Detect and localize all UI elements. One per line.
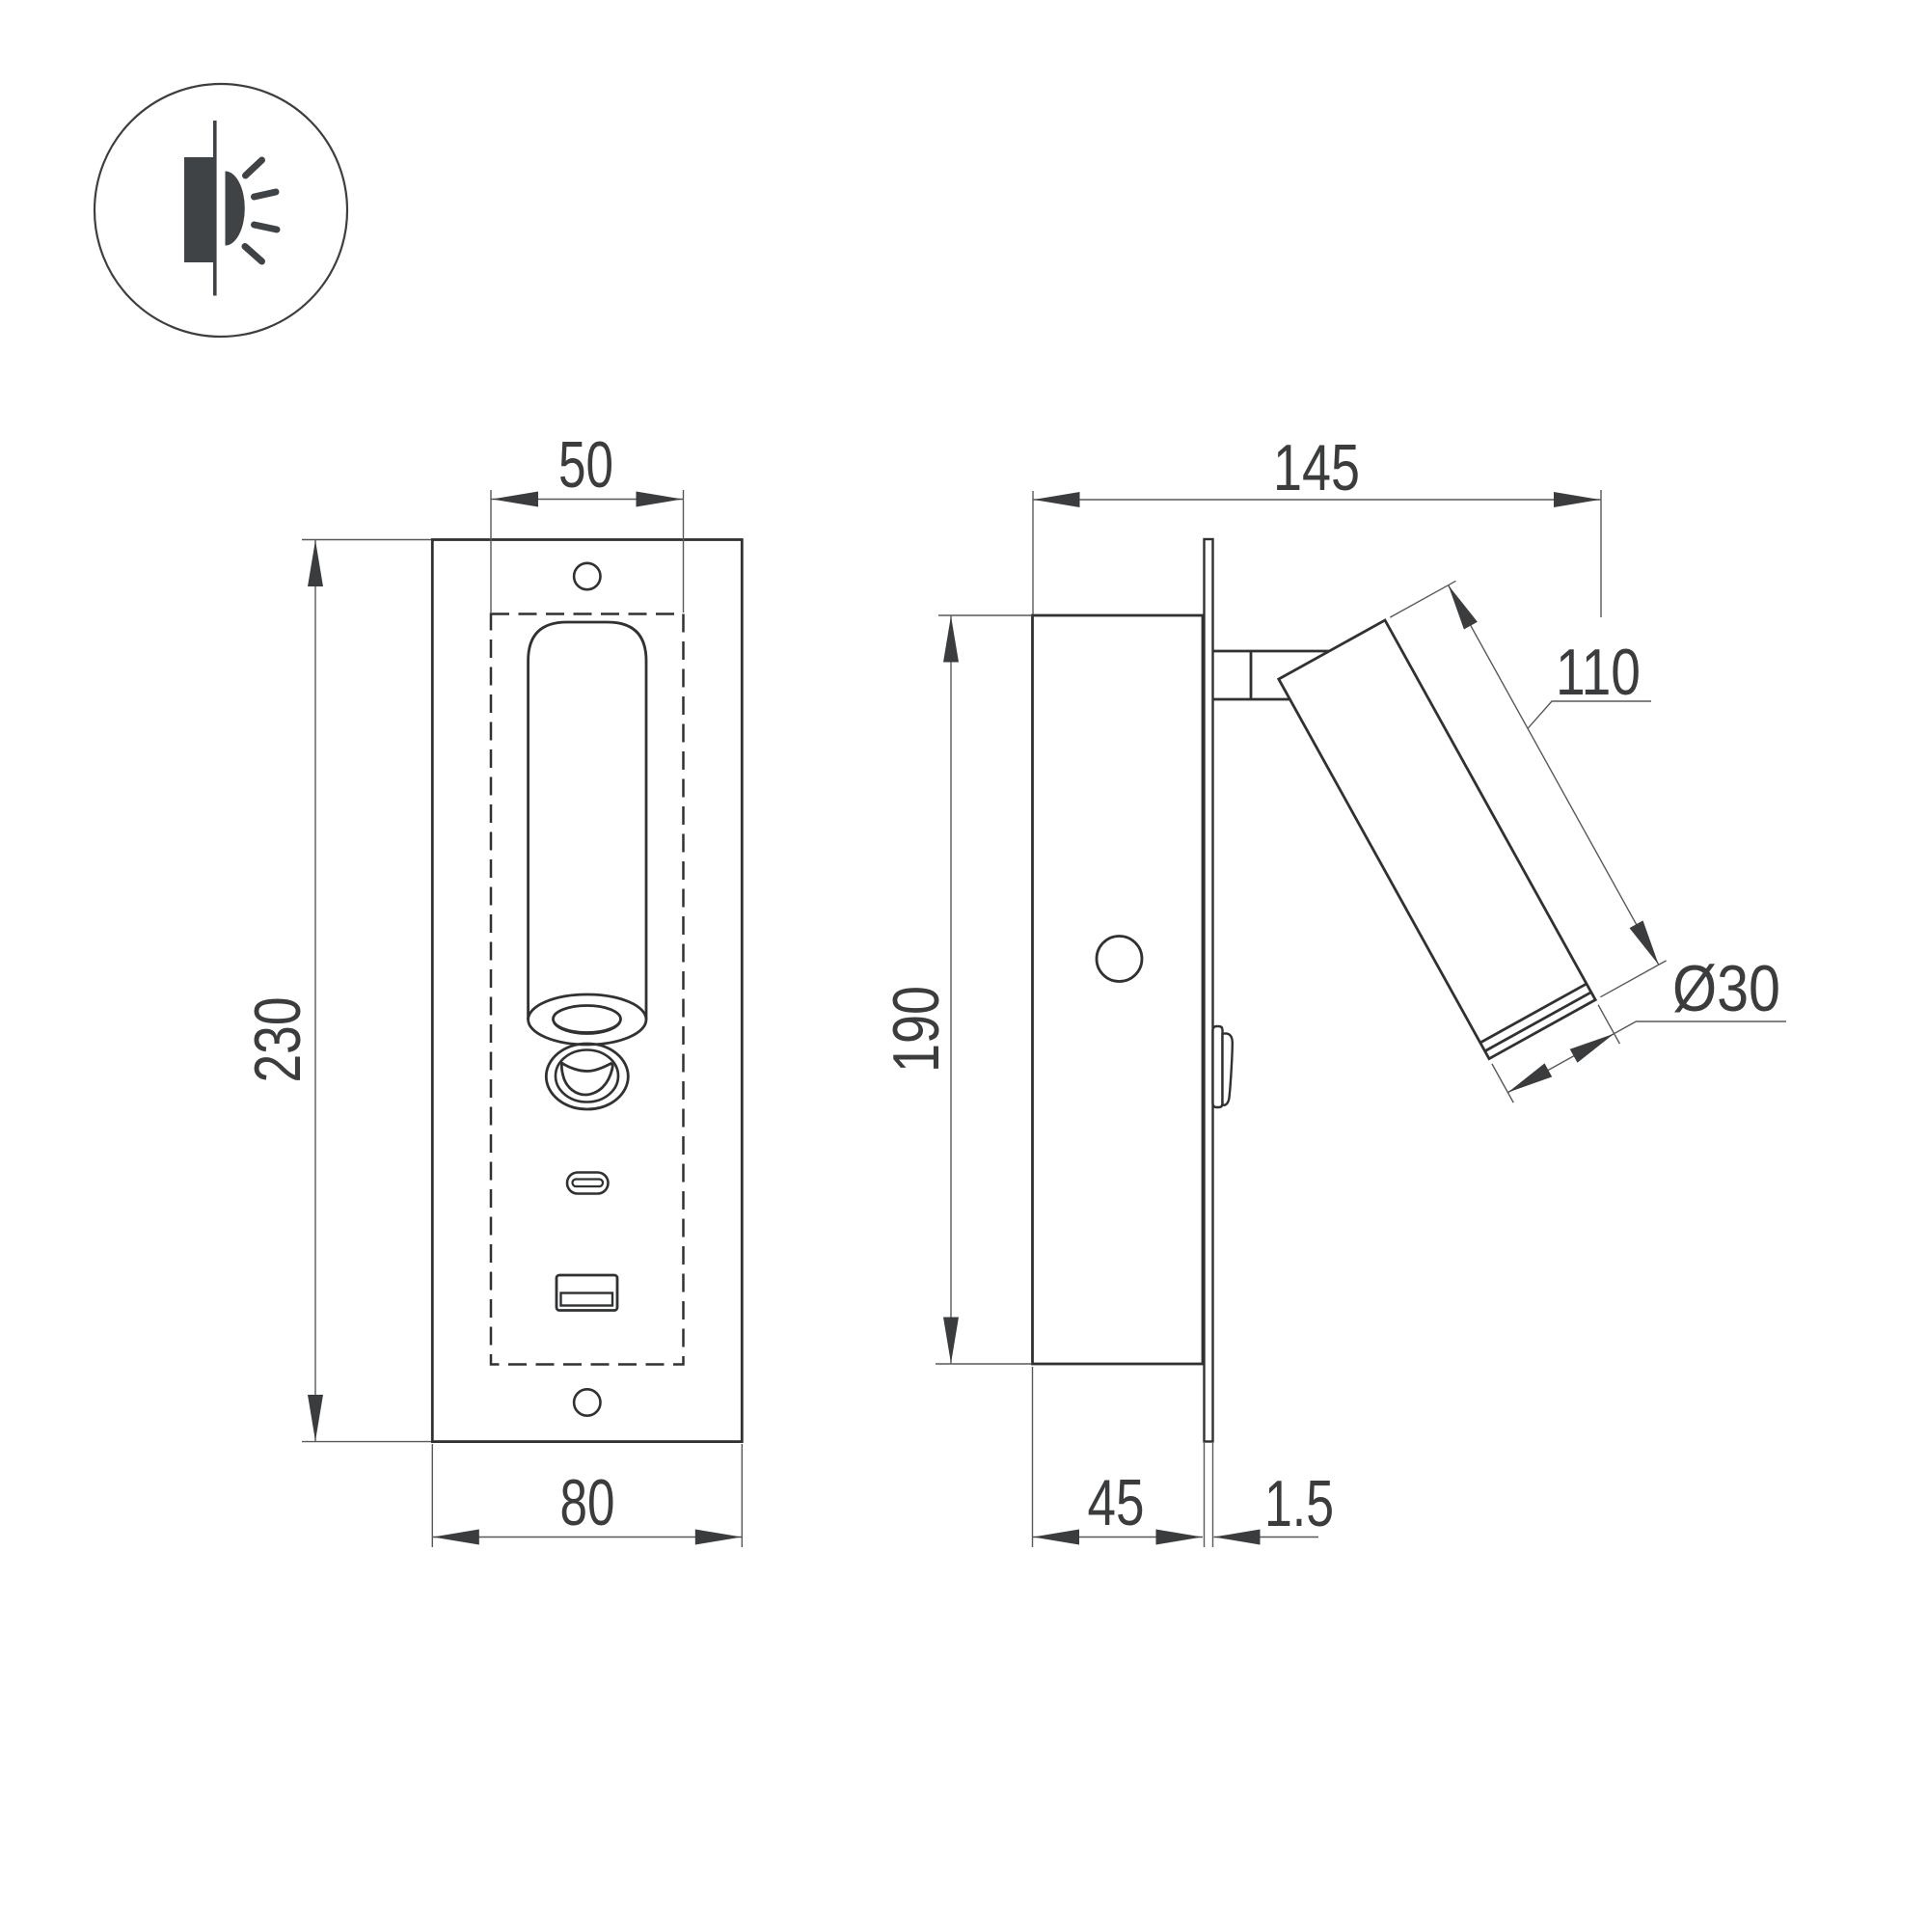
svg-text:230: 230 — [241, 997, 314, 1083]
svg-text:1.5: 1.5 — [1264, 1467, 1334, 1540]
svg-text:50: 50 — [558, 428, 613, 502]
svg-text:110: 110 — [1556, 636, 1641, 709]
svg-text:Ø30: Ø30 — [1672, 952, 1780, 1025]
svg-text:80: 80 — [560, 1466, 615, 1539]
svg-text:190: 190 — [880, 986, 953, 1073]
svg-text:45: 45 — [1088, 1466, 1145, 1539]
svg-text:145: 145 — [1273, 431, 1360, 504]
